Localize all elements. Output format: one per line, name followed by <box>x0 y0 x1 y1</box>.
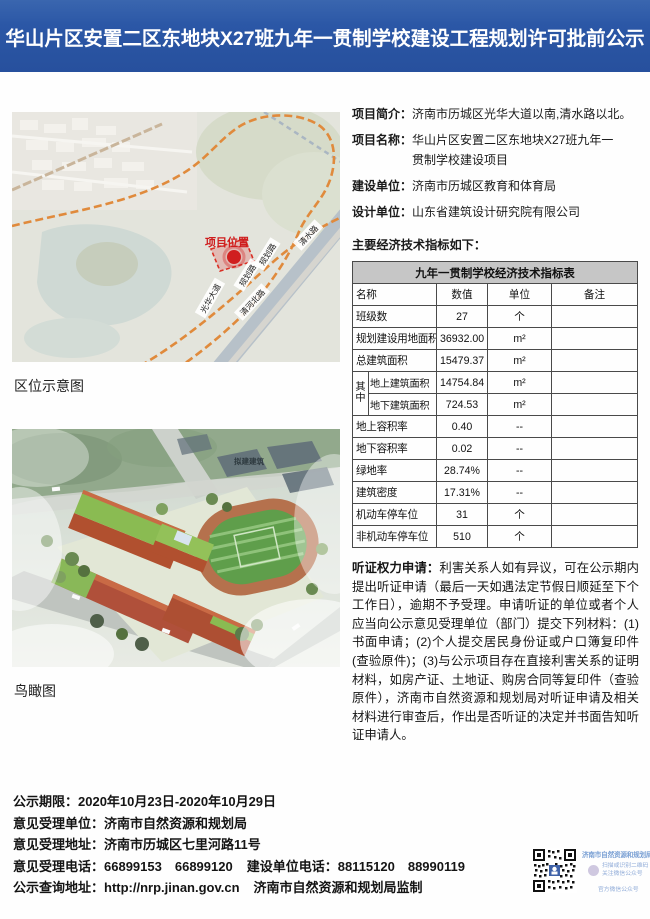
aerial-label: 拟建建筑 <box>234 456 264 466</box>
table-row: 建筑密度17.31%-- <box>353 482 638 504</box>
footer-line-phone: 意见受理电话：66899153 66899120建设单位电话：88115120 … <box>13 856 613 878</box>
qr-title: 济南市自然资源和规划局 <box>582 849 646 859</box>
footer-line-address: 意见受理地址：济南市历城区七里河路11号 <box>13 834 613 856</box>
qr-line-2: 关注微信公众号 <box>602 871 648 879</box>
info-row-name: 项目名称： 华山片区安置二区东地块X27班九年一贯制学校建设项目 <box>352 130 639 170</box>
info-label: 建设单位： <box>352 176 412 196</box>
info-label: 项目简介： <box>352 104 412 124</box>
indicators-table: 九年一贯制学校经济技术指标表 名称 数值 单位 备注 班级数27个 规划建设用地… <box>352 261 638 548</box>
info-label: 设计单位： <box>352 202 412 222</box>
public-notice-page: 华山片区安置二区东地块X27班九年一贯制学校建设工程规划许可批前公示 <box>0 0 650 919</box>
table-row: 其中 地上建筑面积14754.84m² <box>353 372 638 394</box>
notice-url-link[interactable]: http://nrp.jinan.gov.cn <box>104 880 240 895</box>
table-header-row: 名称 数值 单位 备注 <box>353 284 638 306</box>
footer-line-period: 公示期限：2020年10月23日-2020年10月29日 <box>13 791 613 813</box>
page-title: 华山片区安置二区东地块X27班九年一贯制学校建设工程规划许可批前公示 <box>5 22 644 51</box>
table-row: 规划建设用地面积36932.00m² <box>353 328 638 350</box>
table-title-row: 九年一贯制学校经济技术指标表 <box>353 262 638 284</box>
qr-line-3: 官方微信公众号 <box>598 884 646 893</box>
table-row: 机动车停车位31个 <box>353 504 638 526</box>
table-row: 地上容积率0.40-- <box>353 416 638 438</box>
info-label: 项目名称： <box>352 130 412 170</box>
site-label: 项目位置 <box>205 235 249 249</box>
indicators-intro: 主要经济技术指标如下： <box>352 235 639 253</box>
qr-avatar <box>588 865 599 876</box>
info-row-designer: 设计单位： 山东省建筑设计研究院有限公司 <box>352 202 639 222</box>
wechat-qr-block: 济南市自然资源和规划局 扫描或识别二维码 关注微信公众号 官方微信公众号 <box>532 848 646 893</box>
table-row: 班级数27个 <box>353 306 638 328</box>
info-row-builder: 建设单位： 济南市历城区教育和体育局 <box>352 176 639 196</box>
info-value: 济南市历城区光华大道以南,清水路以北。 <box>412 104 631 124</box>
hearing-text: 利害关系人如有异议，可在公示期内提出听证申请（最后一天如遇法定节假日顺延至下个工… <box>352 561 639 742</box>
table-row: 绿地率28.74%-- <box>353 460 638 482</box>
info-value: 济南市历城区教育和体育局 <box>412 176 556 196</box>
qr-text-panel: 济南市自然资源和规划局 扫描或识别二维码 关注微信公众号 官方微信公众号 <box>582 848 646 893</box>
table-row: 地下建筑面积724.53m² <box>353 394 638 416</box>
table-row: 地下容积率0.02-- <box>353 438 638 460</box>
footer-line-url: 公示查询地址：http://nrp.jinan.gov.cn济南市自然资源和规划… <box>13 877 613 899</box>
qr-line-1: 扫描或识别二维码 <box>602 863 648 871</box>
right-column: 项目简介： 济南市历城区光华大道以南,清水路以北。 项目名称： 华山片区安置二区… <box>352 104 639 757</box>
info-row-intro: 项目简介： 济南市历城区光华大道以南,清水路以北。 <box>352 104 639 124</box>
header-band: 华山片区安置二区东地块X27班九年一贯制学校建设工程规划许可批前公示 <box>0 0 650 72</box>
footer-line-unit: 意见受理单位：济南市自然资源和规划局 <box>13 813 613 835</box>
map-caption: 区位示意图 <box>14 376 340 396</box>
left-column: 项目位置 清水路 规划路 规划路 光华大道 <box>12 112 340 701</box>
table-row: 非机动车停车位510个 <box>353 526 638 548</box>
hearing-paragraph: 听证权力申请：利害关系人如有异议，可在公示期内提出听证申请（最后一天如遇法定节假… <box>352 559 639 745</box>
footer: 公示期限：2020年10月23日-2020年10月29日 意见受理单位：济南市自… <box>13 791 613 899</box>
hearing-label: 听证权力申请： <box>352 561 439 575</box>
qr-code <box>532 848 577 893</box>
info-value: 山东省建筑设计研究院有限公司 <box>412 202 580 222</box>
location-map: 项目位置 清水路 规划路 规划路 光华大道 <box>12 112 340 362</box>
location-map-figure: 项目位置 清水路 规划路 规划路 光华大道 <box>12 112 340 367</box>
aerial-view-figure: 拟建建筑 <box>12 429 340 672</box>
info-value: 华山片区安置二区东地块X27班九年一贯制学校建设项目 <box>412 130 613 170</box>
aerial-view: 拟建建筑 <box>12 429 340 667</box>
table-row: 总建筑面积15479.37m² <box>353 350 638 372</box>
aerial-caption: 鸟瞰图 <box>14 681 340 701</box>
